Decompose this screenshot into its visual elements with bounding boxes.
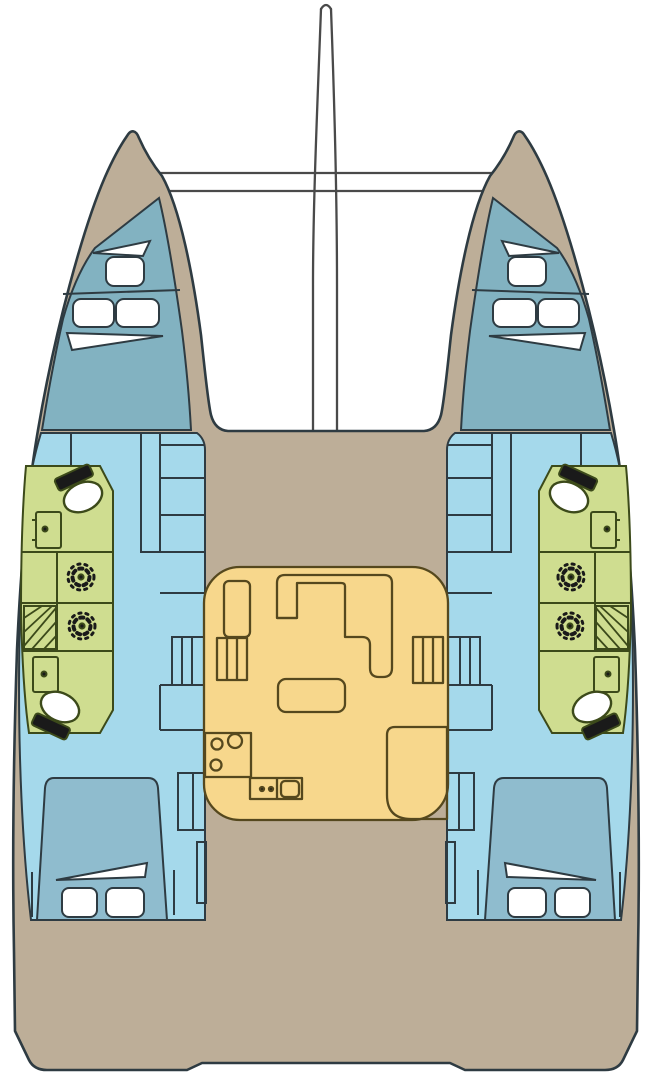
double-berth-pillow-right [106, 888, 144, 917]
port-heads-compartment [21, 463, 113, 741]
port-aft-cabin [37, 778, 167, 920]
salon-floor [204, 567, 448, 820]
starboard-hull-interior [446, 198, 633, 920]
floor-plan-canvas [0, 0, 652, 1080]
double-berth [37, 778, 167, 920]
double-berth-pillow-left [73, 299, 114, 327]
tap-dot [260, 787, 264, 791]
sink-drain-dot [42, 672, 47, 677]
forestay-line-left [313, 9, 321, 430]
double-berth-pillow-right [116, 299, 159, 327]
sink-drain-dot [43, 527, 48, 532]
catamaran-floor-plan [0, 0, 652, 1080]
forward-crossbeam [136, 163, 516, 173]
single-berth-pillow [106, 257, 144, 286]
forestay-line-right [331, 9, 337, 430]
double-berth-pillow-left [62, 888, 97, 917]
tap-dot [269, 787, 273, 791]
salon-galley [204, 567, 448, 820]
port-hull-interior [19, 198, 206, 920]
forestay-apex [321, 5, 331, 9]
